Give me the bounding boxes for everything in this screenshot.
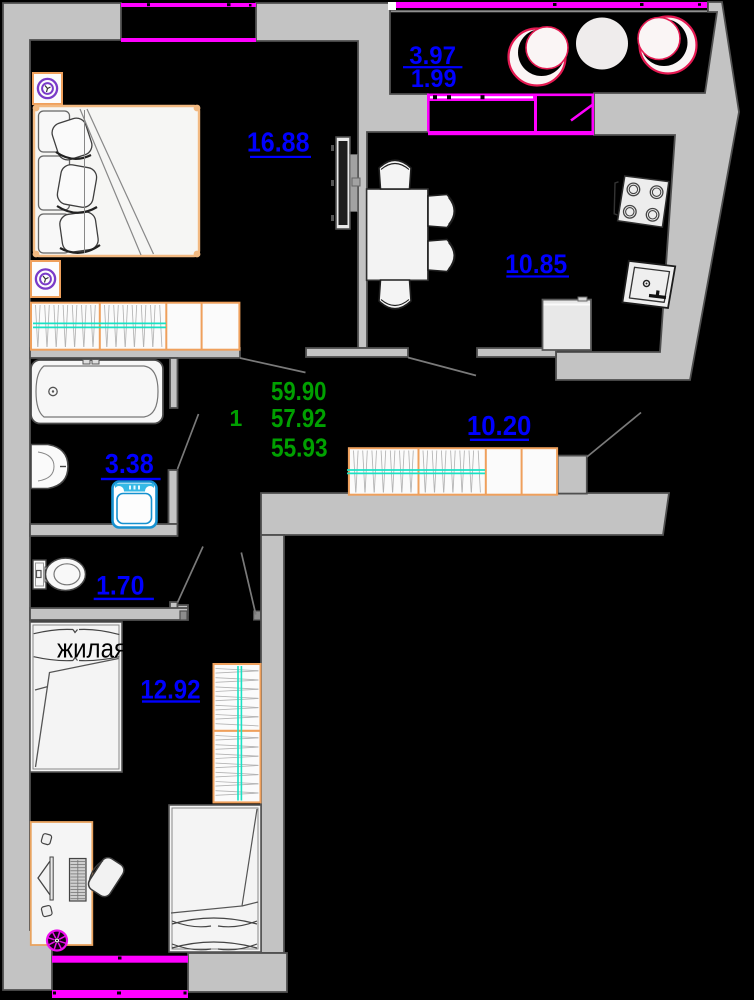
svg-text:55.93: 55.93 bbox=[271, 433, 328, 463]
svg-text:59.90: 59.90 bbox=[271, 376, 327, 406]
svg-text:3.38: 3.38 bbox=[105, 448, 154, 479]
svg-text:1.70: 1.70 bbox=[96, 570, 144, 600]
svg-text:1.99: 1.99 bbox=[411, 65, 457, 93]
svg-text:жилая: жилая bbox=[57, 634, 127, 664]
svg-text:1: 1 bbox=[230, 405, 243, 431]
svg-text:16.88: 16.88 bbox=[247, 127, 310, 158]
svg-text:57.92: 57.92 bbox=[271, 403, 327, 433]
svg-text:10.85: 10.85 bbox=[505, 249, 567, 279]
svg-text:10.20: 10.20 bbox=[467, 410, 532, 441]
svg-text:12.92: 12.92 bbox=[140, 674, 200, 704]
